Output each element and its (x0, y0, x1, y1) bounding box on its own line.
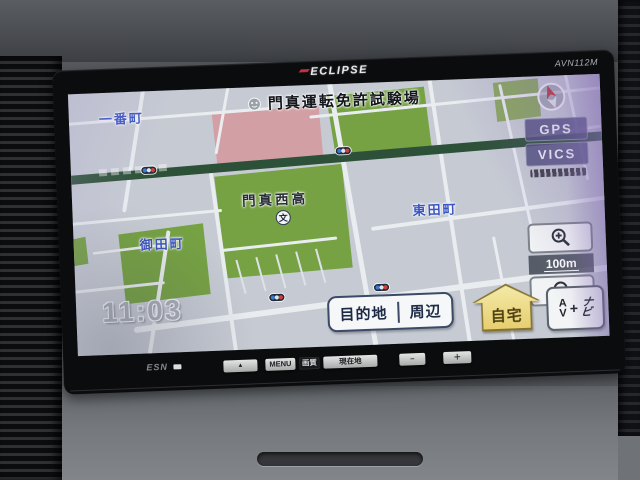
magnifier-plus-icon (549, 226, 572, 249)
navi-label: ナビ (580, 297, 593, 318)
zoom-in-button[interactable] (527, 221, 593, 253)
air-vent-left (0, 56, 62, 480)
esn-logo: ESN (146, 362, 168, 373)
plus-label: + (570, 300, 579, 316)
eject-button[interactable]: ▲ (223, 359, 257, 372)
facility-icon (248, 96, 263, 111)
town-label-ichibancho: 一番町 (98, 107, 144, 128)
brand-wordmark: ECLIPSE (310, 64, 368, 78)
menu-button[interactable]: MENU (265, 358, 295, 371)
home-button-label: 自宅 (472, 303, 541, 327)
av-label: AV (559, 298, 568, 319)
nav-screen: 門真運転免許試験場 一番町 東田町 御田町 門真西高 文 GPS (68, 74, 610, 356)
home-button[interactable]: 自宅 (472, 282, 542, 332)
picture-quality-button[interactable]: 画質 (299, 357, 319, 370)
poi-label-school: 門真西高 (242, 187, 309, 210)
vicinity-button[interactable]: 周辺 (397, 299, 452, 322)
dashboard-corner (618, 436, 640, 480)
model-label: AVN112M (555, 57, 599, 69)
av-navi-toggle-button[interactable]: AV + ナビ (546, 285, 606, 331)
town-label-ondacho: 御田町 (139, 233, 185, 254)
compass-icon (535, 80, 568, 113)
gps-indicator: GPS (524, 116, 588, 141)
head-unit: ECLIPSE AVN112M (52, 49, 626, 394)
destination-vicinity-buttons: 目的地 周辺 (327, 292, 454, 333)
clock-display: 11:03 (102, 294, 183, 329)
volume-down-button[interactable]: − (399, 353, 425, 366)
map-scale: 100m (528, 253, 594, 274)
vics-indicator: VICS (525, 141, 589, 166)
eclipse-slash-icon (299, 68, 310, 71)
indicator-led (173, 364, 181, 369)
town-label-higashidacho: 東田町 (412, 198, 458, 219)
current-location-button[interactable]: 現在地 (323, 355, 377, 369)
volume-up-button[interactable]: ＋ (443, 351, 471, 364)
destination-button[interactable]: 目的地 (329, 301, 398, 325)
dashboard-photo: ECLIPSE AVN112M (0, 0, 640, 480)
dashboard-slot (257, 452, 423, 466)
